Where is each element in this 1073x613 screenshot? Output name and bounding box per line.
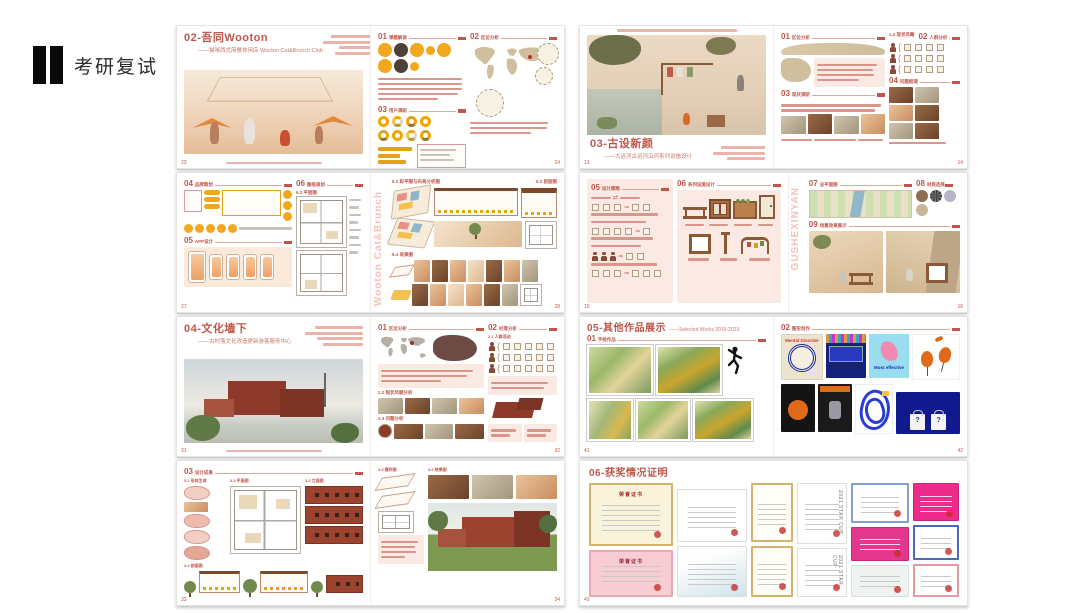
brand-icon-row xyxy=(184,224,292,233)
hand-drawing xyxy=(693,399,753,441)
courtyard-render xyxy=(434,221,522,247)
section-header: 02人群分析 xyxy=(919,33,960,41)
spread-subtitle: ——古村落文化改造更新游客服务中心 xyxy=(198,337,292,345)
competition-caption xyxy=(617,29,737,32)
spread-title: 05-其他作品展示 xyxy=(587,323,666,334)
section-label: 2.3 问题分析 xyxy=(378,416,484,422)
spread-other-works[interactable]: 05-其他作品展示 ——Selected Works 2019-2023 01手… xyxy=(579,316,968,457)
spread-title: 02-吾同Wooton xyxy=(184,32,323,44)
hand-drawing xyxy=(656,345,722,395)
mini-plan xyxy=(525,221,557,249)
page-number: 28 xyxy=(554,304,560,310)
dimension-list xyxy=(349,196,363,296)
world-map xyxy=(470,43,557,87)
page-left: 02-吾同Wooton ——猫咪西式简餐休闲店 Wooton Cat&Brunc… xyxy=(177,26,370,168)
section-header: 08材质选择 xyxy=(916,180,960,188)
page-left: 03-古设新颜 ——大运河古运河沿河系列设施设计 13 xyxy=(580,26,773,168)
section-header: 01区位分析 xyxy=(781,33,885,41)
spread-title: 04-文化墙下 xyxy=(184,323,292,335)
section-header: 02区位分析 xyxy=(470,33,557,41)
poster-mental-disorder: Mental Disorder xyxy=(781,334,823,380)
certificate-document xyxy=(677,489,747,542)
page-number: 41 xyxy=(584,448,590,454)
page-right: 3.5 爆炸图 3.6 效果图 xyxy=(370,461,564,605)
section-header: 03用户调研 xyxy=(378,106,466,114)
note-box xyxy=(524,424,558,443)
poster-most-effective: Most effective xyxy=(869,334,909,378)
survey-photos xyxy=(781,116,885,134)
poster-cat-orange xyxy=(781,384,815,432)
note-box xyxy=(814,58,885,87)
map-blob xyxy=(781,58,811,82)
legend-box xyxy=(417,144,466,168)
section-label: 2.1 人群活动 xyxy=(488,334,557,340)
page-number: 33 xyxy=(181,597,187,603)
hand-drawing xyxy=(636,399,690,441)
page-number: 42 xyxy=(957,448,963,454)
note-box xyxy=(488,376,557,395)
section-header: 02村落分析 xyxy=(488,324,557,332)
certificate-magenta xyxy=(851,527,909,561)
issue-grid xyxy=(889,87,960,139)
activity-row: { xyxy=(488,342,557,351)
section-label: 6.4 效果图 xyxy=(392,252,557,258)
paragraph-placeholder xyxy=(378,75,466,103)
watermark-text: GUSHEXINYAN xyxy=(790,187,801,270)
page-number: 24 xyxy=(554,160,560,166)
issue-photos xyxy=(378,424,484,439)
note-box xyxy=(378,364,484,388)
certificate-pink-frame xyxy=(913,564,959,597)
donut-charts xyxy=(378,116,466,127)
poster-blue-scribble xyxy=(855,384,893,434)
certificate-star-cup: 2021 STAR CUP xyxy=(797,548,847,597)
certificate-gold-frame xyxy=(751,483,793,542)
certificate-star-cup: 2021 STAR CUP xyxy=(797,483,847,544)
render-thumbnails xyxy=(392,284,557,306)
strategy-panel: 05设计策略 ⇄ ⇒ ⇒ ⇒ xyxy=(587,179,673,303)
section-header: 06系列设施设计 xyxy=(677,180,781,188)
spread-culture-cover[interactable]: 04-文化墙下 ——古村落文化改造更新游客服务中心 31 xyxy=(176,316,565,457)
page-right: 02图形创作 Mental Disorder Most effective xyxy=(773,317,967,456)
spread-subtitle: ——猫咪西式简餐休闲店 Wooton Cat&Brunch Club xyxy=(198,46,323,54)
certificate-blue xyxy=(851,483,909,523)
egg-characters-artwork xyxy=(912,334,960,380)
poster-row-1: Mental Disorder Most effective xyxy=(781,334,960,380)
cabinet-icon xyxy=(709,199,731,219)
topic-bubbles-chart xyxy=(378,43,464,73)
logo-label: 考研复试 xyxy=(74,52,158,79)
render-thumbs xyxy=(428,475,557,499)
certificate-gold-frame xyxy=(751,546,793,597)
section-label: 3.4 剖面图 xyxy=(184,563,363,569)
scene-renders xyxy=(809,231,960,293)
project-info-lines xyxy=(713,143,765,160)
page-right: 01区位分析 03现状调研 xyxy=(773,26,967,168)
poster-ptsd xyxy=(826,334,866,378)
page-number: 32 xyxy=(554,448,560,454)
floor-plan-2 xyxy=(296,250,347,296)
section-drawing xyxy=(434,188,518,216)
spread-wooton-plans[interactable]: 04品牌策划 xyxy=(176,172,565,313)
section-header: 07总平面图 xyxy=(809,180,912,188)
certificate-gold: 荣誉证书 xyxy=(589,483,673,546)
poster-robot xyxy=(818,384,852,432)
world-map-gray xyxy=(378,334,430,362)
page-number: 14 xyxy=(957,160,963,166)
page-right: Wooton Cat&Brunch 6.2 彩平图与布局分析图 6.3 剖面图 xyxy=(370,173,564,312)
tote-bags-panel: ? ? xyxy=(896,392,960,434)
page-right: 01区位分析 xyxy=(370,317,564,456)
page-number: 13 xyxy=(584,160,590,166)
section-drawing xyxy=(521,188,557,218)
axon-line-drawing xyxy=(520,284,542,306)
certificate-blue xyxy=(913,525,959,560)
paragraph-placeholder xyxy=(781,102,885,115)
page-left: 03设计成果 3.1 形体生成 3.2 平面图 xyxy=(177,461,370,605)
spread-title: 03-古设新颜 xyxy=(590,138,692,150)
detail-circle xyxy=(535,67,553,85)
section-header: 01课题解读 xyxy=(378,33,466,41)
exterior-render xyxy=(428,503,557,571)
paragraph-placeholder xyxy=(470,119,557,137)
people-row: { xyxy=(889,43,960,52)
brick-building-render xyxy=(184,359,363,443)
page-right: 01课题解读 03用户调研 xyxy=(370,26,564,168)
people-row: { xyxy=(889,54,960,63)
color-plan-iso xyxy=(387,218,436,249)
section-header: 01区位分析 xyxy=(378,324,484,332)
project-info-lines xyxy=(323,32,370,55)
spread-subtitle: ——Selected Works 2019-2023 xyxy=(669,327,739,333)
hand-drawing xyxy=(587,399,633,441)
slide-canvas: 考研复试 02-吾同Wooton ——猫咪西式简餐休闲店 Wooton Cat&… xyxy=(0,0,1073,613)
section-header: 05APP设计 xyxy=(184,237,292,245)
footer-caption xyxy=(226,162,322,165)
page-left: 04品牌策划 xyxy=(177,173,370,312)
donut-charts xyxy=(378,130,466,141)
brand-diagram xyxy=(184,190,292,221)
region-blob xyxy=(433,335,477,361)
section-header: 03设计成果 xyxy=(184,468,363,476)
section-header: 04问题梳理 xyxy=(889,77,960,85)
footer-caption xyxy=(226,450,322,453)
activity-row: { xyxy=(488,353,557,362)
sign-frame-icon xyxy=(689,234,711,254)
logo: 考研复试 xyxy=(33,46,158,84)
section-label: 2.2 现状风貌分析 xyxy=(378,390,484,396)
spread-culture-results[interactable]: 03设计成果 3.1 形体生成 3.2 平面图 xyxy=(176,460,565,606)
spread-subtitle: ——大运河古运河沿河系列设施设计 xyxy=(604,152,692,160)
people-row: { xyxy=(889,65,960,74)
bench-icon xyxy=(683,204,707,219)
axon-yellow xyxy=(390,290,412,300)
elevations: 3.3 立面图 xyxy=(305,478,363,560)
section-label: 3.6 效果图 xyxy=(428,467,557,473)
section-header: 02图形创作 xyxy=(781,324,960,332)
main-plan: 3.2 平面图 xyxy=(230,478,301,560)
sections-row xyxy=(184,571,363,593)
certificate-gradient xyxy=(677,546,747,597)
page-left: 05设计策略 ⇄ ⇒ ⇒ ⇒ xyxy=(580,173,788,312)
page-awards: 06-获奖情况证明 荣誉证书 荣誉证书 xyxy=(580,461,967,605)
poster-row-2: ? ? xyxy=(781,384,960,434)
section-label: 6.2 彩平图与布局分析图 xyxy=(392,179,440,185)
page-number: 43 xyxy=(584,597,590,603)
exploded-axon: 3.5 爆炸图 xyxy=(378,467,424,571)
section-header: 06图纸规划 xyxy=(296,180,363,188)
section-header: 09场景效果展示 xyxy=(809,221,960,229)
furniture-panel xyxy=(677,190,781,303)
pergola-icon xyxy=(741,237,769,254)
certificate-small xyxy=(851,565,909,597)
detail-circle xyxy=(537,43,559,65)
section-label: 6.3 剖面图 xyxy=(536,179,557,185)
site-circle xyxy=(476,89,504,117)
page-number: 34 xyxy=(554,597,560,603)
section-label: 1.2 现状鸟瞰 xyxy=(889,32,915,38)
spread-wooton-cover[interactable]: 02-吾同Wooton ——猫咪西式简餐休闲店 Wooton Cat&Brunc… xyxy=(176,25,565,169)
section-header: 04品牌策划 xyxy=(184,180,292,188)
section-header: 01手绘作品 xyxy=(587,335,766,343)
logo-bars-icon xyxy=(33,46,63,84)
spread-canal-facilities[interactable]: 05设计策略 ⇄ ⇒ ⇒ ⇒ xyxy=(579,172,968,313)
axon-plate xyxy=(389,264,415,278)
axon-building xyxy=(488,398,557,424)
material-swatches xyxy=(916,190,960,216)
cafe-interior-render xyxy=(184,70,363,154)
hand-drawing xyxy=(587,345,653,395)
page-number: 31 xyxy=(181,448,187,454)
floor-plan-1 xyxy=(296,196,347,248)
page-number: 23 xyxy=(181,160,187,166)
page-right: GUSHEXINYAN 07总平面图 08材质选择 xyxy=(788,173,967,312)
lamp-post-icon xyxy=(724,234,727,254)
note-box xyxy=(488,424,522,443)
render-thumbnails xyxy=(392,260,557,282)
climbing-man-silhouette xyxy=(725,345,745,377)
page-number: 16 xyxy=(957,304,963,310)
page-left: 04-文化墙下 ——古村落文化改造更新游客服务中心 31 xyxy=(177,317,370,456)
spread-awards[interactable]: 06-获奖情况证明 荣誉证书 荣誉证书 xyxy=(579,460,968,606)
activity-row: { xyxy=(488,364,557,373)
page-number: 15 xyxy=(584,304,590,310)
door-icon xyxy=(759,195,775,219)
master-plan-strip xyxy=(809,190,912,218)
app-mockups xyxy=(184,247,292,287)
bar-chart xyxy=(378,145,414,167)
page-number: 27 xyxy=(181,304,187,310)
spread-canal-cover[interactable]: 03-古设新颜 ——大运河古运河沿河系列设施设计 13 01区位分析 xyxy=(579,25,968,169)
watermark-text: Wooton Cat&Brunch xyxy=(373,191,384,306)
planter-cart-icon xyxy=(733,201,757,219)
spread-title: 06-获奖情况证明 xyxy=(589,468,668,479)
project-info-lines xyxy=(305,323,363,346)
certificate-bright-pink xyxy=(913,483,959,521)
page-left: 05-其他作品展示 ——Selected Works 2019-2023 01手… xyxy=(580,317,773,456)
canal-street-photo xyxy=(587,35,766,135)
color-plan-iso xyxy=(391,184,431,220)
form-generation: 3.1 形体生成 xyxy=(184,478,226,560)
section-header: 03现状调研 xyxy=(781,90,885,98)
certificate-pink: 荣誉证书 xyxy=(589,550,673,597)
note-box xyxy=(378,535,424,564)
bridge-illustration xyxy=(781,43,885,55)
photo-strip xyxy=(378,398,484,414)
